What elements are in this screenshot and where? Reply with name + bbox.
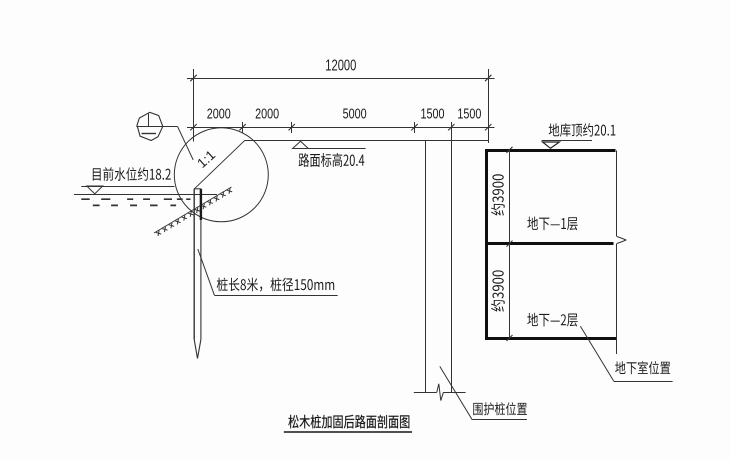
svg-text:1500: 1500 [421,107,445,123]
svg-text:5000: 5000 [343,107,367,123]
svg-text:1500: 1500 [457,107,481,123]
svg-text:2000: 2000 [207,107,231,123]
svg-text:12000: 12000 [325,58,356,75]
svg-text:2000: 2000 [255,107,279,123]
